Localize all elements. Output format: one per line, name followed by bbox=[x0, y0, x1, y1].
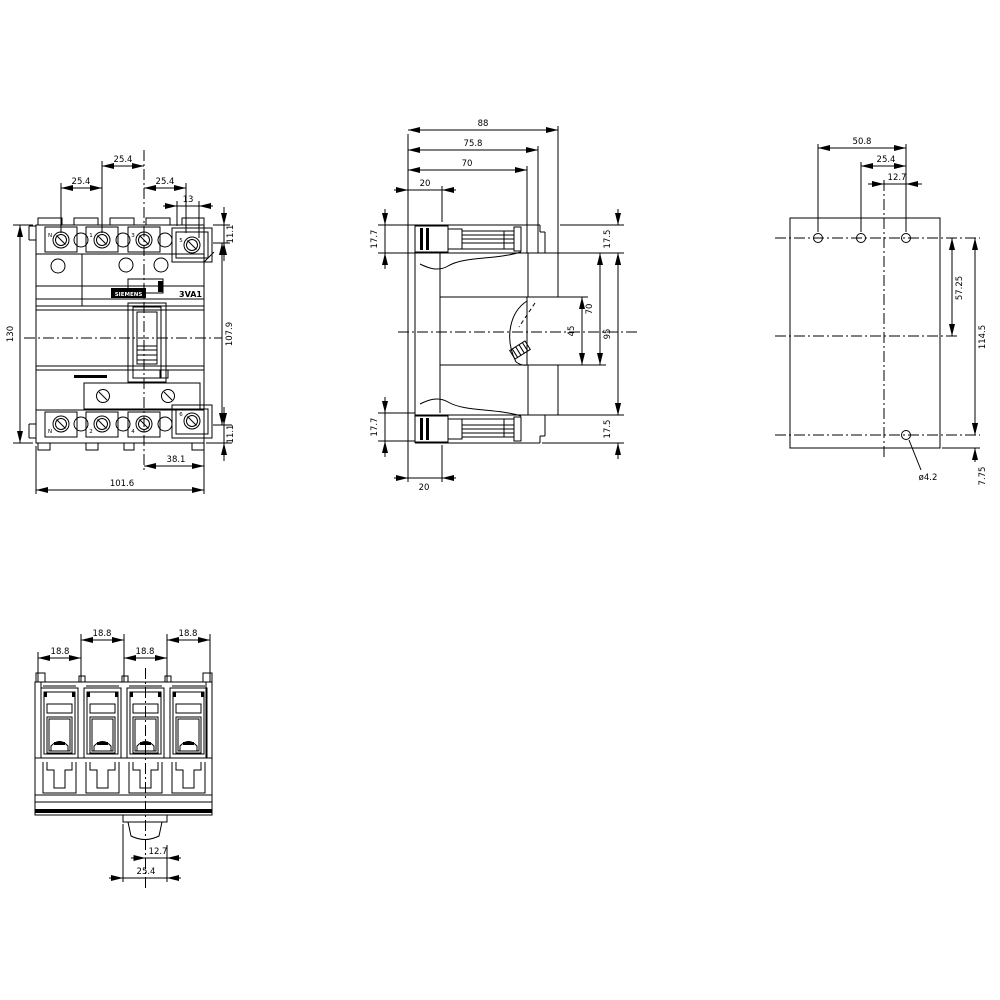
pole-label-top-3: 3 bbox=[131, 233, 135, 239]
dim-pitch-c: 18.8 bbox=[136, 647, 155, 657]
pole-label-top-n: N bbox=[48, 233, 52, 239]
dim-pitch-a: 18.8 bbox=[51, 647, 70, 657]
dim-pitch-b: 18.8 bbox=[93, 629, 112, 639]
dim-step: 70 bbox=[462, 159, 473, 169]
pole-label-bottom-2: 2 bbox=[89, 429, 93, 435]
dim-neutral-offset: 13 bbox=[183, 195, 194, 205]
pole-label-bottom-n: N bbox=[48, 429, 52, 435]
dim-hole-mid: 25.4 bbox=[877, 155, 896, 165]
dim-pitch-right: 25.4 bbox=[156, 177, 175, 187]
dim-handle-to-edge: 38.1 bbox=[167, 455, 186, 465]
dim-cover-top: 17.5 bbox=[603, 230, 613, 249]
dim-case-height: 107.9 bbox=[225, 322, 235, 346]
dim-front-height: 70 bbox=[585, 304, 595, 315]
dim-pitch-mid: 25.4 bbox=[114, 155, 133, 165]
fine-print-text bbox=[74, 375, 107, 378]
pole-label-top-1: 1 bbox=[89, 233, 93, 239]
dim-bottom-offset: 7.75 bbox=[978, 467, 988, 486]
dim-lug-bottom: 20 bbox=[419, 483, 430, 493]
brand-label: SIEMENS bbox=[115, 292, 143, 298]
bottom-view: 18.8 18.8 18.8 18.8 12.7 25.4 bbox=[35, 629, 212, 888]
dim-hole-diameter: ø4.2 bbox=[919, 473, 938, 483]
pole-label-bottom-6: 6 bbox=[179, 412, 183, 418]
pole-label-bottom-4: 4 bbox=[131, 429, 135, 435]
front-view: SIEMENS 3VA1 N 1 3 5 N 2 4 6 25.4 25.4 2… bbox=[6, 150, 236, 494]
dim-lug-top: 20 bbox=[420, 179, 431, 189]
dim-din-width: 25.4 bbox=[137, 867, 156, 877]
rating-plate-tab bbox=[158, 281, 163, 292]
dim-cover-bottom: 17.5 bbox=[603, 420, 613, 439]
dim-hole-span: 50.8 bbox=[853, 137, 872, 147]
rear-view: ø4.2 50.8 25.4 12.7 57.25 114.5 7.75 bbox=[775, 137, 988, 485]
dim-upper-height: 57.25 bbox=[955, 276, 965, 300]
dim-overall-width: 101.6 bbox=[110, 479, 134, 489]
hole-leader-line bbox=[909, 440, 921, 470]
dim-pitch-d: 18.8 bbox=[179, 629, 198, 639]
dim-terminal-bottom: 11.1 bbox=[226, 425, 236, 444]
technical-drawing-page: SIEMENS 3VA1 N 1 3 5 N 2 4 6 25.4 25.4 2… bbox=[0, 0, 1000, 1000]
dim-case-height-side: 95 bbox=[603, 329, 613, 340]
dim-din-center: 12.7 bbox=[149, 847, 168, 857]
side-view: 88 75.8 70 20 17.7 17.7 20 17.5 95 17.5 … bbox=[370, 119, 640, 493]
mccb-dimension-drawing: SIEMENS 3VA1 N 1 3 5 N 2 4 6 25.4 25.4 2… bbox=[0, 0, 1000, 1000]
bottom-base-band bbox=[35, 809, 212, 813]
dim-overall-height-rear: 114.5 bbox=[978, 325, 988, 349]
dim-window: 45 bbox=[567, 326, 577, 337]
dim-depth: 88 bbox=[478, 119, 489, 129]
bottom-body-outline bbox=[35, 673, 212, 840]
rear-centerlines bbox=[775, 180, 980, 460]
dim-front-face: 75.8 bbox=[464, 139, 483, 149]
product-label: 3VA1 bbox=[179, 290, 202, 299]
dim-terminal-top: 11.1 bbox=[226, 225, 236, 244]
front-body-outline bbox=[29, 218, 204, 450]
dim-lug-height-bottom: 17.7 bbox=[370, 418, 380, 437]
front-extension-lines bbox=[13, 161, 232, 494]
dim-hole-to-center: 12.7 bbox=[888, 173, 907, 183]
dim-pitch-left: 25.4 bbox=[72, 177, 91, 187]
rear-plate-outline bbox=[790, 218, 940, 448]
dim-lug-height-top: 17.7 bbox=[370, 230, 380, 249]
dim-overall-height: 130 bbox=[6, 326, 16, 342]
pole-label-top-5: 5 bbox=[179, 238, 183, 244]
